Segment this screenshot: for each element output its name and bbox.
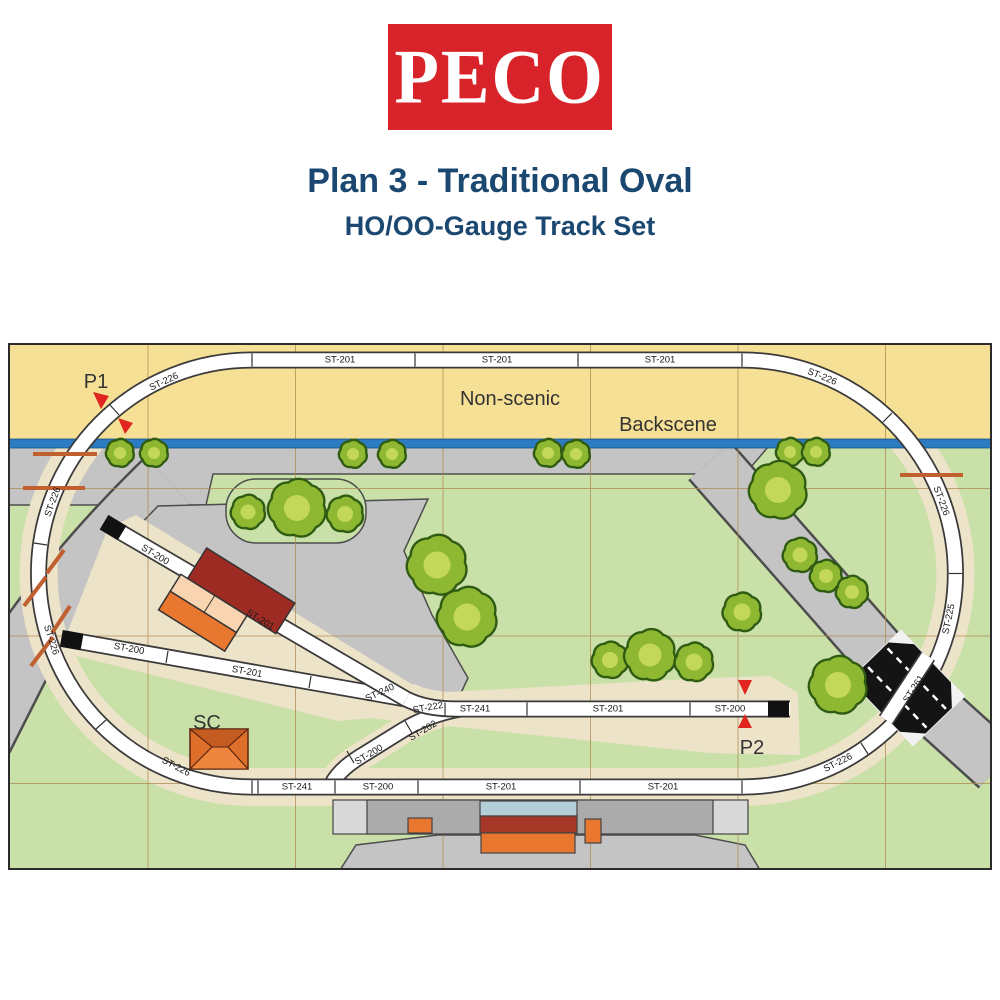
buffer-stop — [768, 701, 789, 718]
peco-logo: PECO — [388, 24, 612, 130]
track-piece-label: ST-241 — [460, 704, 491, 715]
track-piece-label: ST-201 — [325, 355, 356, 366]
track-piece-label: ST-200 — [363, 782, 394, 793]
sc-hut — [190, 729, 248, 769]
track-piece-label: ST-201 — [648, 782, 679, 793]
buffer-stop — [60, 630, 84, 650]
station-building — [480, 816, 577, 833]
sc-label: SC — [193, 712, 221, 734]
track-piece-label: ST-201 — [593, 704, 624, 715]
peco-logo-text: PECO — [395, 33, 605, 122]
backscene-label: Backscene — [619, 414, 717, 436]
track-piece-label: ST-200 — [715, 704, 746, 715]
p1-label: P1 — [84, 371, 108, 393]
track-piece-label: ST-201 — [645, 355, 676, 366]
p2-label: P2 — [740, 737, 764, 759]
track-plan-svg: Non-scenic Backscene P1 P2 SC ST-201ST-2… — [8, 343, 992, 870]
track-piece-label: ST-201 — [482, 355, 513, 366]
platform-hut — [408, 818, 432, 833]
station-annex — [585, 819, 601, 843]
page: PECO Plan 3 - Traditional Oval HO/OO-Gau… — [0, 0, 1000, 1000]
plan-subtitle: HO/OO-Gauge Track Set — [0, 211, 1000, 242]
track-piece-label: ST-201 — [486, 782, 517, 793]
plan-title: Plan 3 - Traditional Oval — [0, 162, 1000, 201]
track-plan: Non-scenic Backscene P1 P2 SC ST-201ST-2… — [8, 343, 992, 870]
station-building-front — [481, 833, 575, 853]
non-scenic-label: Non-scenic — [460, 388, 560, 410]
track-piece-label: ST-241 — [282, 782, 313, 793]
station-canopy — [480, 801, 577, 816]
